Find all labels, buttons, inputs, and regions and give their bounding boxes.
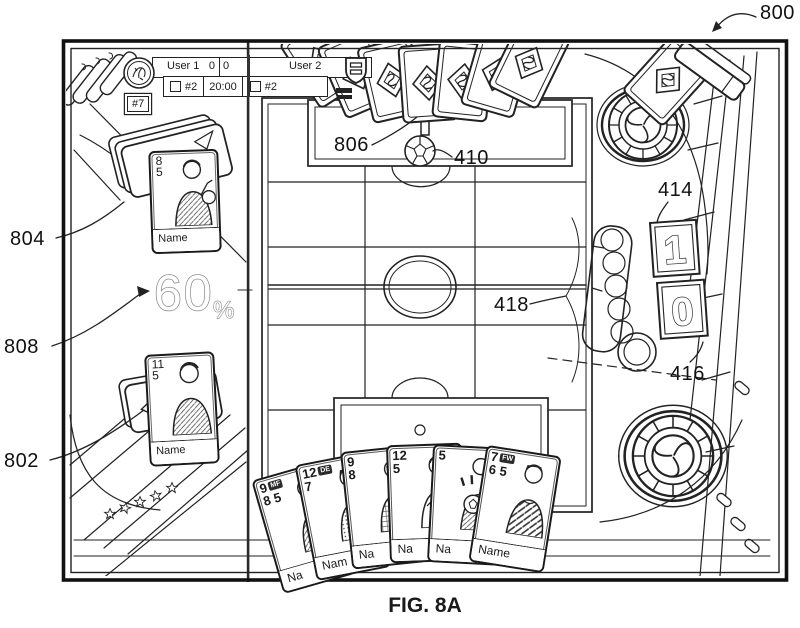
possession-unit: % xyxy=(213,297,234,324)
rating-3: 5 xyxy=(272,489,283,505)
peg-icons xyxy=(715,380,760,554)
scoreboard-subrow: #2 20:00 #2 xyxy=(163,76,328,97)
rating-2: 5 xyxy=(393,461,401,476)
player-portrait xyxy=(162,357,214,435)
field-player-card[interactable]: 11 5 Name xyxy=(144,351,220,467)
rating-2: 7 xyxy=(303,479,313,495)
figure-caption: FIG. 8A xyxy=(50,594,800,618)
soccer-ball-icon xyxy=(405,136,435,166)
scoreboard-score-divider xyxy=(219,58,220,77)
rating-1: 5 xyxy=(438,448,446,461)
card-ratings: 8 5 xyxy=(155,156,162,178)
team2-checkbox[interactable] xyxy=(250,81,261,92)
score-tile-bottom-digit: 0 xyxy=(670,290,695,335)
ref-806: 806 xyxy=(334,134,369,157)
ref-808: 808 xyxy=(4,336,39,359)
ref-416: 416 xyxy=(670,363,705,386)
team1-checkbox[interactable] xyxy=(170,81,181,92)
ref-804: 804 xyxy=(10,228,45,251)
possession-value: 60 xyxy=(154,265,214,321)
rating-3: 5 xyxy=(498,463,507,479)
card-ratings: 11 5 xyxy=(151,359,165,382)
scoreboard: User 1 0 0 User 2 xyxy=(152,57,372,78)
rating-2: 5 xyxy=(156,167,163,178)
score-tile-bottom: 0 xyxy=(657,280,708,339)
player-number-badge: #7 xyxy=(127,96,149,112)
panel-divider-overlay xyxy=(247,55,250,97)
team2-jersey-number: #2 xyxy=(265,81,277,93)
rating-2: 8 xyxy=(348,467,357,483)
scoreboard-score-left: 0 xyxy=(201,60,215,72)
scoreboard-user1: User 1 xyxy=(167,60,199,72)
team1-crest-icon xyxy=(122,56,156,95)
ref-800: 800 xyxy=(760,2,795,25)
team1-jersey-number: #2 xyxy=(185,81,197,93)
team2-crest-icon xyxy=(344,55,368,90)
score-tile-top-digit: 1 xyxy=(662,228,687,273)
position-badge: DE xyxy=(318,464,333,475)
score-tile-top: 1 xyxy=(650,220,700,277)
bottom-knob-dial-icon xyxy=(619,405,728,506)
position-badge: MF xyxy=(268,478,284,491)
match-timer: 20:00 xyxy=(203,77,243,96)
ref-414: 414 xyxy=(658,179,693,202)
scoreboard-user2: User 2 xyxy=(289,60,321,72)
card-name: Name xyxy=(151,438,218,464)
rating-2: 5 xyxy=(152,370,165,382)
ref-802: 802 xyxy=(4,450,39,473)
possession-indicator: 60 % xyxy=(154,265,252,324)
goalkeeper-card[interactable]: 8 5 Name xyxy=(148,149,222,254)
goalkeeper-portrait xyxy=(166,155,216,227)
ref-410: 410 xyxy=(454,147,489,170)
patent-figure-8a: 1 0 xyxy=(0,0,800,628)
rating-2: 6 xyxy=(488,462,497,478)
scoreboard-score-right: 0 xyxy=(223,60,229,72)
card-name: Name xyxy=(153,227,220,252)
panel-divider xyxy=(247,42,250,582)
ref-418: 418 xyxy=(494,294,529,317)
